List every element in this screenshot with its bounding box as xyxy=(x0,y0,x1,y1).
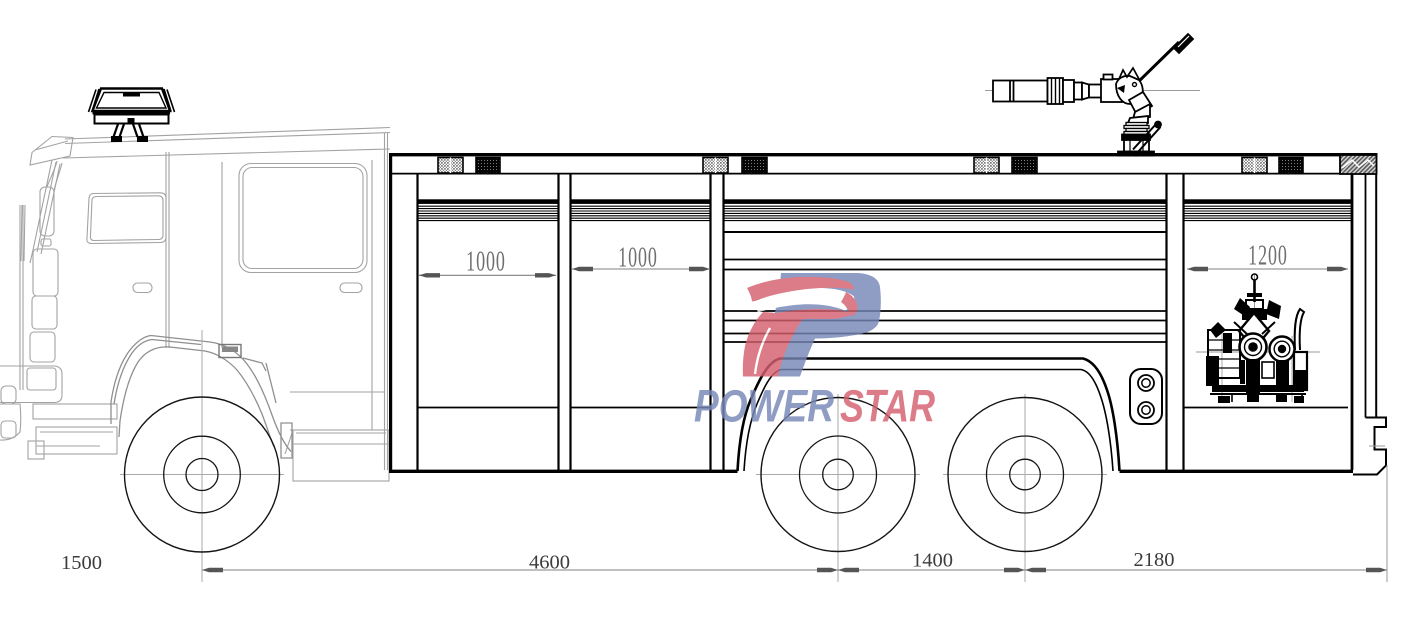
svg-text:1000: 1000 xyxy=(466,246,506,277)
svg-text:POWER: POWER xyxy=(694,381,834,432)
svg-text:4600: 4600 xyxy=(529,552,570,574)
svg-text:1400: 1400 xyxy=(912,550,953,572)
svg-text:1000: 1000 xyxy=(618,242,658,273)
svg-text:1200: 1200 xyxy=(1248,240,1288,271)
svg-text:2180: 2180 xyxy=(1134,549,1175,571)
svg-text:STAR: STAR xyxy=(840,381,935,432)
svg-text:1500: 1500 xyxy=(61,552,102,574)
